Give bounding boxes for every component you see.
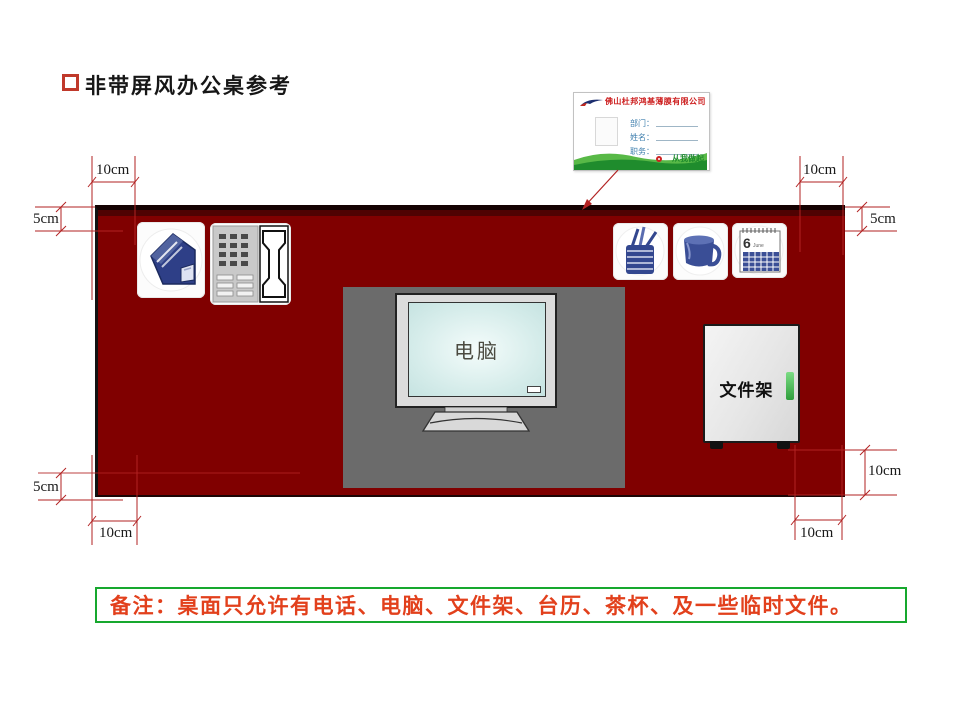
file-rack-foot — [710, 441, 723, 449]
file-rack-foot — [777, 441, 790, 449]
calendar-day: 6 — [743, 235, 751, 251]
page-title-text: 非带屏风办公桌参考 — [85, 70, 292, 100]
file-rack-label: 文件架 — [705, 376, 788, 401]
card-field-name: 姓名： — [630, 129, 698, 143]
monitor-stand — [415, 407, 537, 433]
photo-placeholder — [595, 117, 618, 146]
dim-top-left-width: 10cm — [96, 162, 129, 179]
slide-page: 非带屏风办公桌参考 — [0, 0, 960, 720]
card-field-department: 部门： — [630, 115, 698, 129]
dim-top-right-width: 10cm — [803, 162, 836, 179]
square-bullet-icon — [62, 74, 79, 91]
calendar-month: June — [753, 243, 764, 249]
company-logo-icon — [579, 97, 604, 108]
file-rack: 文件架 — [703, 324, 800, 443]
monitor-power-button — [527, 386, 541, 393]
note-box: 备注：桌面只允许有电话、电脑、文件架、台历、茶杯、及一些临时文件。 — [95, 587, 907, 623]
tea-cup-icon — [673, 223, 728, 280]
monitor-label: 电脑 — [454, 335, 500, 364]
file-organizer-tile — [137, 222, 205, 298]
magazine-file-icon — [137, 222, 205, 298]
tea-cup-tile — [673, 223, 728, 280]
card-slogan: 从我做起 — [672, 153, 704, 164]
field-underline — [656, 140, 698, 141]
dim-bottom-right-height: 10cm — [868, 463, 901, 480]
dim-top-left-height: 5cm — [33, 211, 59, 228]
dim-bottom-left-width: 10cm — [99, 525, 132, 542]
telephone-tile — [210, 223, 291, 305]
company-name: 佛山杜邦鸿基薄膜有限公司 — [605, 97, 707, 106]
pen-holder-icon — [613, 223, 668, 280]
telephone-icon — [210, 223, 291, 305]
calendar-icon: 6 June — [732, 223, 787, 278]
slogan-logo-icon — [656, 156, 662, 162]
dim-bottom-left-height: 5cm — [33, 479, 59, 496]
monitor-screen: 电脑 — [408, 302, 546, 397]
field-underline — [656, 126, 698, 127]
note-text: 备注：桌面只允许有电话、电脑、文件架、台历、茶杯、及一些临时文件。 — [110, 590, 853, 620]
calendar-tile: 6 June — [732, 223, 787, 278]
name-card: 佛山杜邦鸿基薄膜有限公司 部门： 姓名： 职务： 从我做起 — [573, 92, 710, 171]
computer-monitor: 电脑 — [395, 293, 557, 408]
card-pointer-arrow — [582, 170, 618, 210]
file-rack-handle — [786, 372, 794, 400]
pen-holder-tile — [613, 223, 668, 280]
page-title: 非带屏风办公桌参考 — [62, 70, 292, 100]
dim-bottom-right-width: 10cm — [800, 525, 833, 542]
dim-top-right-height: 5cm — [870, 211, 896, 228]
